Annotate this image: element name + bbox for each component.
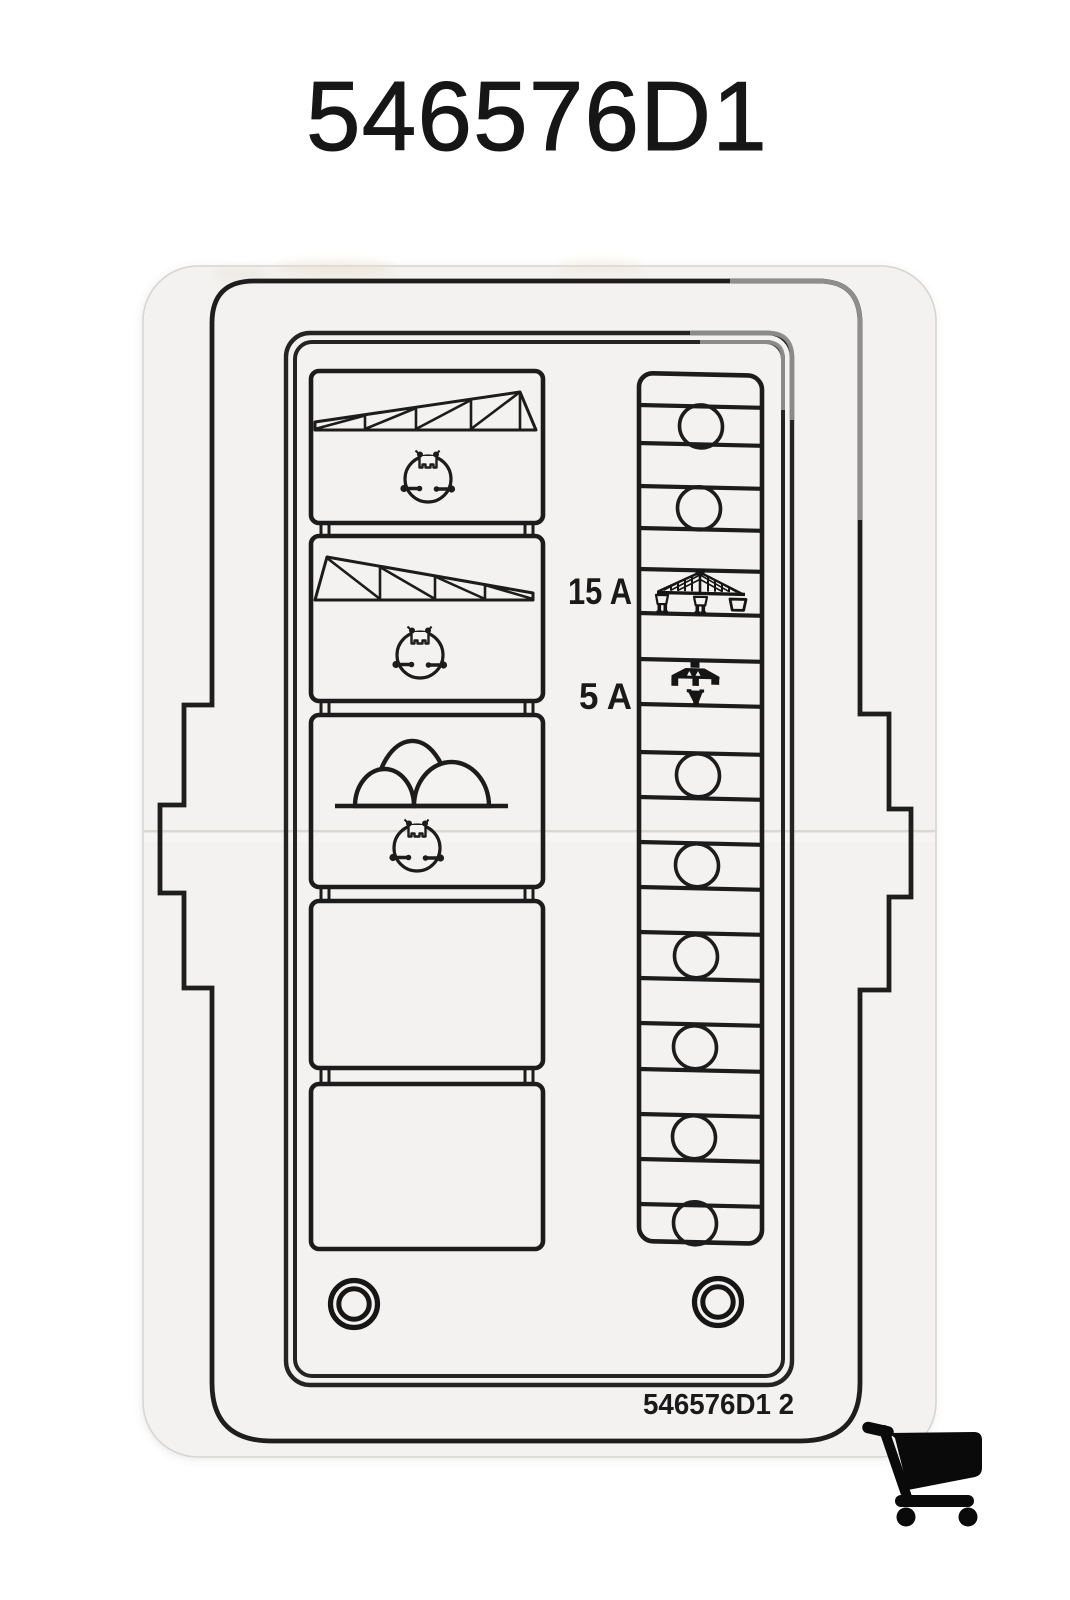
svg-text:15 A: 15 A xyxy=(568,571,632,612)
svg-text:5 A: 5 A xyxy=(579,676,632,717)
svg-text:546576D1 2: 546576D1 2 xyxy=(643,1389,794,1421)
